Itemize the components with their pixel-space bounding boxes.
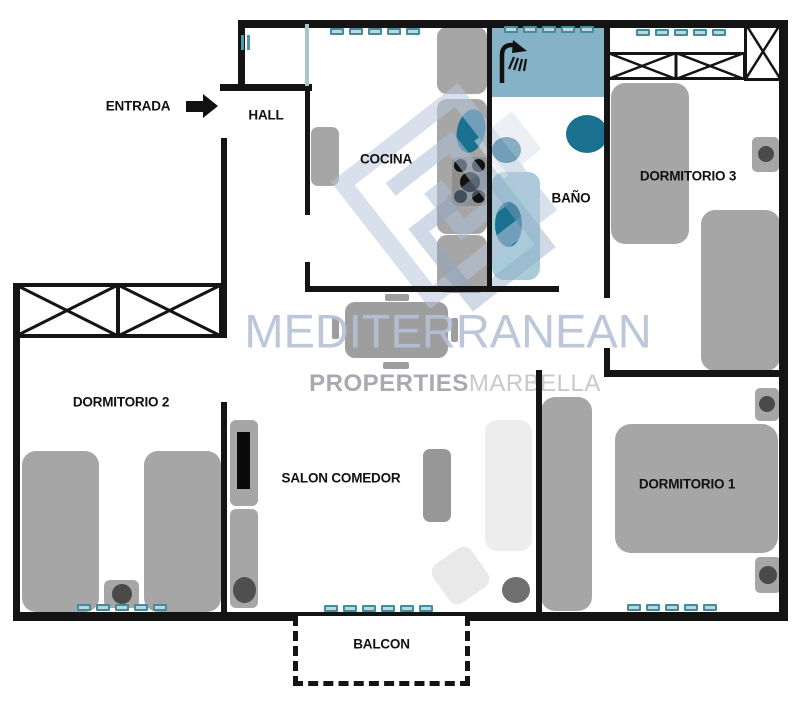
bed-dorm2-right <box>144 451 221 612</box>
tv-screen <box>237 432 250 489</box>
wardrobe-dorm3-vertical-x <box>744 22 782 81</box>
wall-dorm3-bottom <box>604 370 787 377</box>
nightstand-dorm3 <box>752 137 779 172</box>
window-mark <box>362 605 376 612</box>
window-mark <box>636 29 650 36</box>
window-mark <box>580 26 594 33</box>
window-mark <box>115 604 129 611</box>
window-mark <box>712 29 726 36</box>
burner <box>472 190 485 203</box>
window-mark <box>96 604 110 611</box>
window-mark <box>561 26 575 33</box>
watermark-properties: PROPERTIES <box>309 370 469 397</box>
window-mark <box>381 605 395 612</box>
wardrobe-dorm2-x <box>14 283 223 338</box>
wall-kitchen-bottom <box>305 286 559 292</box>
shower-icon <box>497 38 529 84</box>
room-label-salon: SALON COMEDOR <box>282 471 401 486</box>
window-mark <box>419 605 433 612</box>
wall-right <box>779 20 788 621</box>
room-label-bano: BAÑO <box>552 191 591 206</box>
room-label-dormitorio1: DORMITORIO 1 <box>639 477 735 492</box>
room-label-dormitorio3: DORMITORIO 3 <box>640 169 736 184</box>
window-mark <box>655 29 669 36</box>
window-dorm2 <box>77 604 167 611</box>
window-dorm3 <box>636 29 726 36</box>
window-mark <box>665 604 679 611</box>
wall-dorm2-right <box>221 402 227 614</box>
window-mark <box>542 26 556 33</box>
room-label-entrada: ENTRADA <box>106 99 171 114</box>
window-cocina <box>330 28 420 35</box>
window-mark <box>349 28 363 35</box>
wardrobe-dorm1 <box>541 397 592 611</box>
window-mark <box>400 605 414 612</box>
room-label-cocina: COCINA <box>360 152 412 167</box>
nightstand-dorm1-bottom <box>755 557 781 593</box>
wardrobe-dorm3-horizontal-x <box>607 52 746 80</box>
window-mark <box>674 29 688 36</box>
room-label-hall: HALL <box>248 108 283 123</box>
kitchen-counter-top <box>437 27 487 94</box>
window-mark <box>693 29 707 36</box>
closet-glass-line <box>305 24 309 86</box>
room-label-dormitorio2: DORMITORIO 2 <box>73 395 169 410</box>
armchair <box>423 449 451 522</box>
window-mark <box>368 28 382 35</box>
sofa <box>485 420 532 551</box>
side-table <box>502 577 530 603</box>
window-bano <box>504 26 594 33</box>
window-mark <box>523 26 537 33</box>
pouf <box>428 543 493 608</box>
bed-dorm3 <box>611 83 689 244</box>
window-mark <box>134 604 148 611</box>
dining-chair-bottom <box>383 362 409 369</box>
dining-chair-right <box>451 318 458 342</box>
chaise-dorm3 <box>701 210 780 371</box>
watermark-marbella: MARBELLA <box>469 370 601 397</box>
burner <box>454 190 467 203</box>
window-mark <box>703 604 717 611</box>
dining-chair-top <box>385 294 409 301</box>
watermark-brand: MEDITERRANEAN <box>244 304 651 359</box>
toilet <box>492 137 521 163</box>
wall-bano-left <box>487 24 492 290</box>
floor-plan: MEDITERRANEAN PROPERTIESMARBELLA BALCON <box>0 0 800 719</box>
window-mark <box>504 26 518 33</box>
window-mark <box>324 605 338 612</box>
burner-center <box>460 172 480 192</box>
room-label-balcon: BALCON <box>353 637 410 652</box>
window-dorm1 <box>627 604 717 611</box>
wall-hall-top <box>220 84 312 91</box>
bathroom-sink <box>566 115 608 153</box>
stove <box>452 157 488 206</box>
window-mark <box>406 28 420 35</box>
window-mark <box>77 604 91 611</box>
tv-unit <box>230 420 258 506</box>
entrance-arrow-icon <box>186 94 220 118</box>
wall-cocina-left-upper <box>305 86 310 215</box>
window-mark <box>387 28 401 35</box>
window-mark <box>330 28 344 35</box>
window-mark <box>646 604 660 611</box>
dining-table <box>345 302 448 358</box>
burner <box>472 159 485 172</box>
window-salon <box>324 605 433 612</box>
closet-door-mark <box>241 35 250 50</box>
burner <box>454 159 467 172</box>
fridge <box>311 127 339 186</box>
wall-salon-dorm1 <box>536 370 542 614</box>
nightstand-dorm1-top <box>755 388 779 421</box>
wall-closet-left <box>238 20 245 88</box>
window-mark <box>343 605 357 612</box>
kitchen-counter-bottom <box>437 235 487 293</box>
window-mark <box>684 604 698 611</box>
window-mark <box>627 604 641 611</box>
watermark-subtitle: PROPERTIESMARBELLA <box>309 370 601 398</box>
window-mark <box>153 604 167 611</box>
bathtub-basin <box>495 202 522 247</box>
bed-dorm2-left <box>22 451 99 612</box>
balcony: BALCON <box>293 616 470 686</box>
sideboard <box>230 509 258 608</box>
dining-chair-left <box>332 317 339 339</box>
